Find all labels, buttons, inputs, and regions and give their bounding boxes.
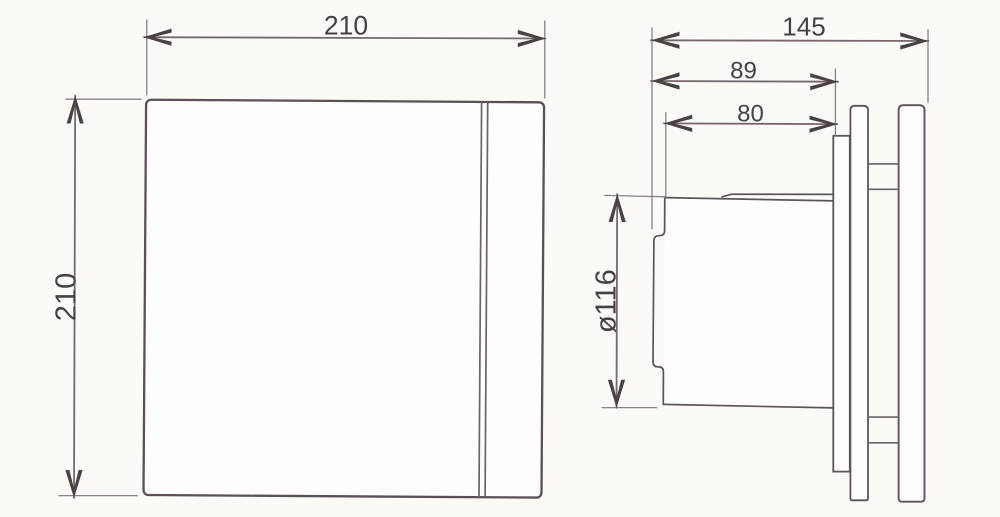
svg-text:80: 80 (737, 100, 764, 127)
svg-text:210: 210 (324, 11, 368, 41)
svg-text:145: 145 (782, 11, 825, 41)
svg-text:210: 210 (51, 273, 83, 321)
svg-text:ø116: ø116 (591, 269, 623, 333)
svg-text:89: 89 (730, 57, 757, 84)
